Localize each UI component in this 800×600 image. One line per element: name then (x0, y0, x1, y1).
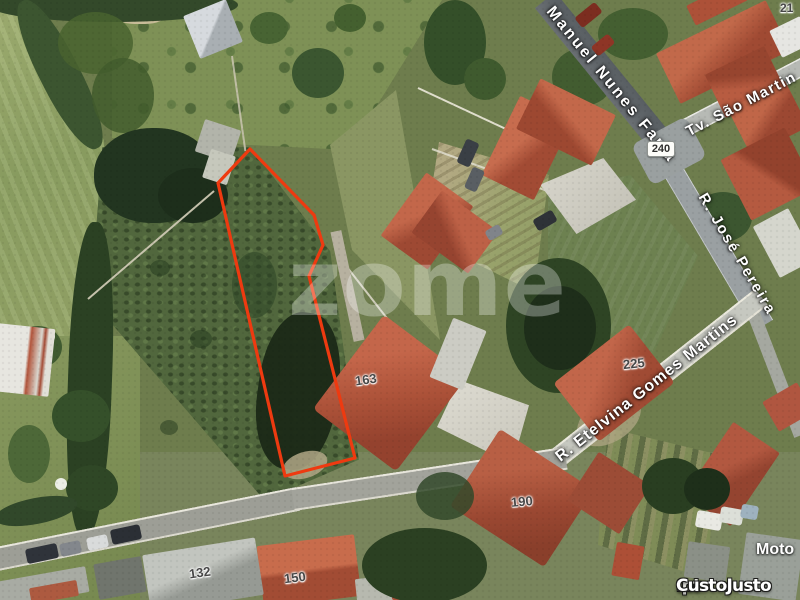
satellite-map[interactable]: Manuel Nunes Faria Tv. São Martin R. Jos… (0, 0, 800, 600)
bush (150, 260, 170, 276)
tree-canopy (250, 12, 288, 44)
house-number-21: 21 (780, 1, 793, 15)
tree-canopy (292, 48, 344, 98)
shed-roof (611, 542, 644, 580)
house-number-190: 190 (510, 493, 533, 510)
house-roof-150 (257, 534, 362, 600)
road-badge-240: 240 (647, 141, 675, 157)
house-number-150: 150 (283, 569, 306, 587)
moto-label: Moto (756, 541, 794, 559)
custojusto-logo: CustoJusto.pt (676, 576, 700, 596)
tree-canopy (52, 390, 110, 442)
tree-canopy (464, 58, 506, 100)
water-tank (55, 478, 67, 490)
tree-canopy (362, 528, 487, 600)
house-number-225: 225 (622, 355, 645, 372)
parked-van (740, 504, 759, 521)
tree-canopy (92, 58, 154, 133)
tree-canopy (8, 425, 50, 483)
tree-canopy (684, 468, 730, 510)
tree-canopy (334, 4, 366, 32)
custojusto-logo-name: CustoJusto (676, 576, 771, 596)
shadow-in-plot (232, 252, 277, 318)
house-roof (753, 208, 800, 278)
zome-watermark: zome (288, 238, 567, 330)
shed-roof-rusty (0, 323, 55, 397)
bush (190, 330, 212, 348)
bush (160, 420, 178, 435)
house-number-132: 132 (188, 564, 212, 582)
house-number-163: 163 (354, 371, 378, 389)
parked-van (574, 2, 602, 28)
tree-canopy (416, 472, 474, 520)
